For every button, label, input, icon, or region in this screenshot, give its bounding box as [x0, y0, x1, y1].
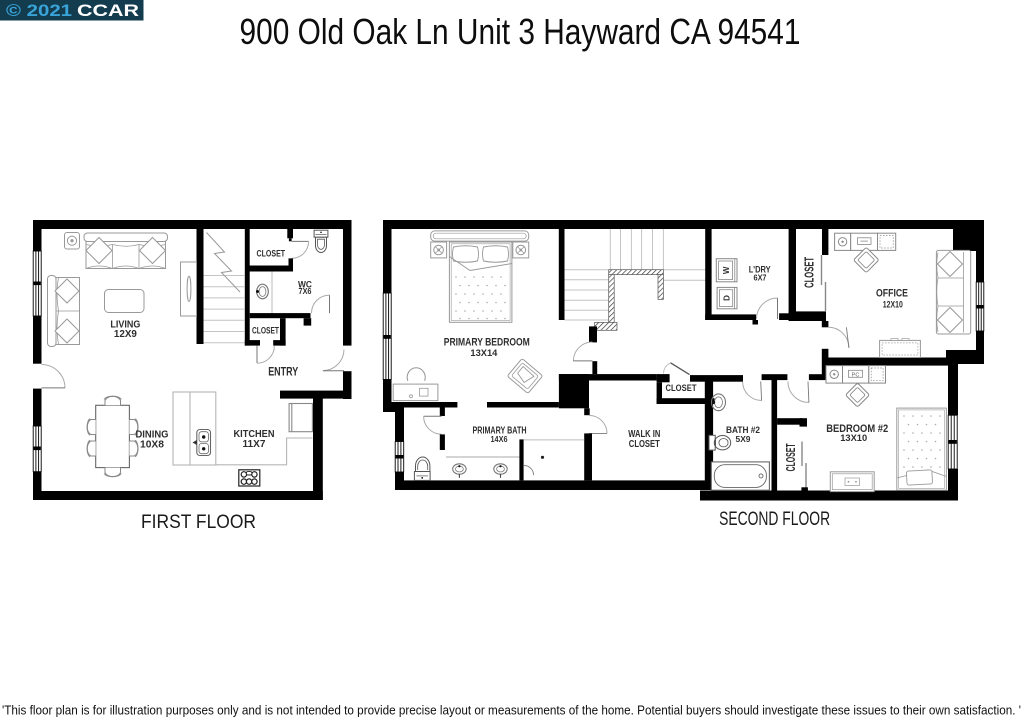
svg-text:14X6: 14X6: [491, 434, 508, 444]
svg-text:11X7: 11X7: [243, 438, 266, 450]
svg-text:CLOSET: CLOSET: [629, 439, 660, 450]
svg-text:CLOSET: CLOSET: [802, 257, 817, 288]
svg-text:'This floor plan is for illust: 'This floor plan is for illustration pur…: [2, 703, 1021, 718]
svg-text:FIRST FLOOR: FIRST FLOOR: [141, 512, 256, 533]
svg-text:CLOSET: CLOSET: [784, 443, 798, 471]
svg-text:SECOND FLOOR: SECOND FLOOR: [719, 509, 830, 530]
svg-text:D: D: [723, 295, 732, 301]
svg-text:PC: PC: [852, 373, 860, 379]
svg-text:12X9: 12X9: [114, 328, 137, 340]
svg-text:CCAR: CCAR: [77, 1, 139, 20]
svg-text:7X6: 7X6: [299, 287, 313, 296]
svg-text:W: W: [722, 266, 731, 274]
svg-text:5X9: 5X9: [736, 434, 751, 444]
svg-text:ENTRY: ENTRY: [268, 366, 298, 378]
svg-text:6X7: 6X7: [754, 274, 768, 283]
svg-text:CLOSET: CLOSET: [252, 326, 279, 337]
svg-text:OFFICE: OFFICE: [876, 287, 908, 299]
svg-text:10X8: 10X8: [140, 439, 164, 451]
svg-text:CLOSET: CLOSET: [257, 248, 286, 259]
svg-text:13X10: 13X10: [840, 433, 867, 444]
svg-text:PRIMARY BEDROOM: PRIMARY BEDROOM: [444, 336, 530, 348]
svg-text:© 2021: © 2021: [6, 1, 72, 20]
svg-text:CLOSET: CLOSET: [666, 383, 697, 393]
svg-text:12X10: 12X10: [883, 299, 903, 310]
svg-text:13X14: 13X14: [470, 348, 498, 359]
svg-text:900 Old Oak Ln Unit 3 Hayward: 900 Old Oak Ln Unit 3 Hayward CA 94541: [240, 11, 801, 52]
